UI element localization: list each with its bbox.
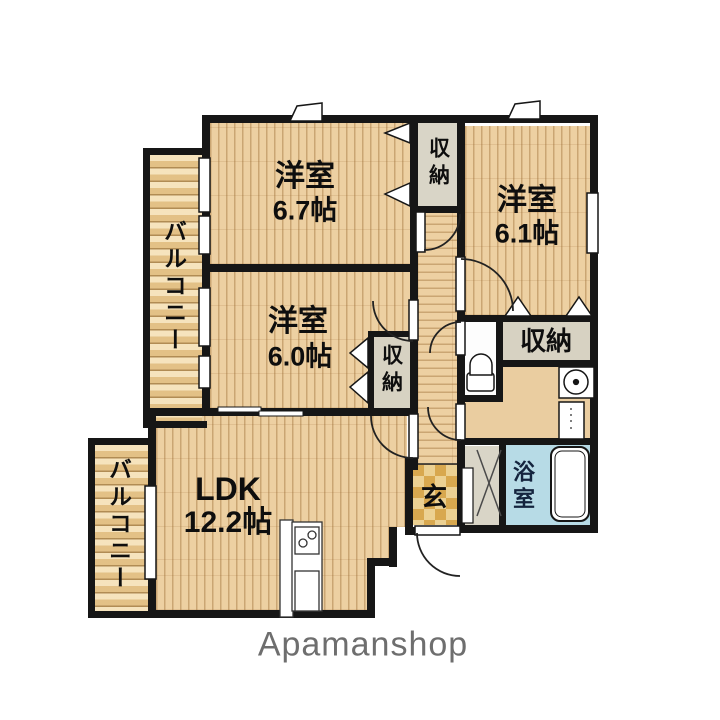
wall [202, 115, 418, 123]
wall [405, 527, 418, 535]
wall [457, 395, 503, 402]
wall [368, 331, 418, 337]
bedroom-top-left-size: 6.7帖 [273, 198, 338, 225]
wall [499, 445, 506, 525]
entrance-door-leaf [415, 526, 460, 535]
corridor-floor [418, 213, 457, 465]
wall [503, 360, 598, 367]
wall [496, 315, 503, 402]
wall [368, 331, 374, 415]
wall [367, 560, 375, 618]
ldk-size: 12.2帖 [184, 508, 272, 538]
bath-label: 浴室 [511, 460, 533, 514]
entrance-label: 玄 [421, 484, 447, 510]
balcony-wall [143, 148, 207, 155]
wall [202, 264, 418, 272]
closet-top-label: 収納 [428, 137, 449, 191]
wall [457, 115, 598, 123]
ldk-name: LDK [195, 473, 261, 505]
ldk-floor-c [156, 560, 369, 610]
bedroom-mid-size: 6.0帖 [268, 344, 333, 371]
bedroom-top-left-floor [210, 123, 410, 264]
balcony-wall [88, 611, 156, 618]
wall [410, 115, 418, 470]
balcony-upper-label: バルコニー [162, 220, 185, 355]
closet-right-label: 収納 [520, 328, 572, 354]
wall [148, 408, 418, 416]
washroom-floor [503, 367, 590, 438]
closet-mid-label: 収納 [381, 344, 402, 398]
floor-plan: 洋室 6.7帖 洋室 6.1帖 洋室 6.0帖 LDK 12.2帖 収納 収納 … [0, 0, 720, 720]
entry-utility-area [462, 446, 503, 525]
balcony-wall [88, 438, 95, 618]
wall [148, 610, 375, 618]
entrance-door-arc [417, 533, 460, 576]
wall [457, 118, 465, 533]
balcony-wall [143, 421, 207, 428]
balcony-wall [143, 148, 150, 428]
bedroom-mid-name: 洋室 [268, 307, 328, 337]
wall [414, 206, 461, 213]
wall [590, 115, 598, 533]
balcony-wall [88, 438, 153, 445]
wall [414, 115, 461, 123]
wall [405, 458, 413, 535]
wall [457, 315, 598, 322]
wall [457, 525, 598, 533]
bedroom-top-left-name: 洋室 [275, 162, 335, 192]
wall [457, 438, 598, 445]
bedroom-top-right-size: 6.1帖 [495, 221, 560, 248]
toilet-floor [465, 322, 496, 395]
washroom-floor-left [465, 402, 503, 438]
bedroom-top-right-name: 洋室 [497, 186, 557, 216]
balcony-lower-label: バルコニー [107, 458, 130, 593]
apamanshop-logo: Apamanshop [258, 626, 468, 665]
